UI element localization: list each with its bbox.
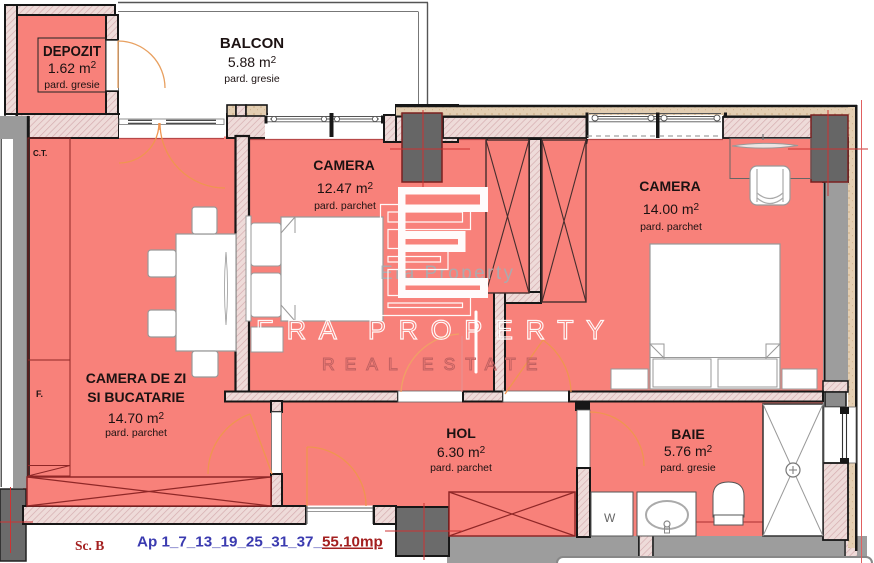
svg-text:W: W xyxy=(604,511,616,525)
svg-text:pard. parchet: pard. parchet xyxy=(640,221,702,233)
svg-text:5.76 m2: 5.76 m2 xyxy=(664,443,713,459)
svg-text:1.62 m2: 1.62 m2 xyxy=(48,60,97,76)
svg-text:6.30 m2: 6.30 m2 xyxy=(437,444,486,460)
svg-text:pard. parchet: pard. parchet xyxy=(105,427,167,439)
svg-text:pard. parchet: pard. parchet xyxy=(314,200,376,212)
svg-text:pard. gresie: pard. gresie xyxy=(660,462,716,474)
svg-text:DEPOZIT: DEPOZIT xyxy=(43,44,101,60)
svg-text:BAIE: BAIE xyxy=(671,426,704,442)
svg-text:CAMERA: CAMERA xyxy=(313,157,374,173)
svg-text:C.T.: C.T. xyxy=(33,149,47,158)
svg-text:REAL ESTATE: REAL ESTATE xyxy=(322,354,547,374)
svg-text:HOL: HOL xyxy=(446,425,476,441)
svg-text:Sc. B: Sc. B xyxy=(75,538,104,553)
svg-text:Ap 1_7_13_19_25_31_37_55.10mp: Ap 1_7_13_19_25_31_37_55.10mp xyxy=(137,534,383,551)
svg-text:pard. gresie: pard. gresie xyxy=(44,79,100,91)
svg-text:CAMERA DE ZI: CAMERA DE ZI xyxy=(86,370,187,386)
svg-text:ERA PROPERTY: ERA PROPERTY xyxy=(256,315,617,345)
svg-text:12.47 m2: 12.47 m2 xyxy=(317,180,374,196)
svg-text:CAMERA: CAMERA xyxy=(639,178,700,194)
svg-text:pard. parchet: pard. parchet xyxy=(430,462,492,474)
svg-text:5.88 m2: 5.88 m2 xyxy=(228,54,277,70)
svg-text:14.00 m2: 14.00 m2 xyxy=(643,201,700,217)
svg-text:BALCON: BALCON xyxy=(220,35,284,52)
svg-text:SI BUCATARIE: SI BUCATARIE xyxy=(87,389,184,405)
svg-text:F.: F. xyxy=(36,389,43,399)
svg-text:pard. gresie: pard. gresie xyxy=(224,73,280,85)
svg-text:14.70 m2: 14.70 m2 xyxy=(108,410,165,426)
